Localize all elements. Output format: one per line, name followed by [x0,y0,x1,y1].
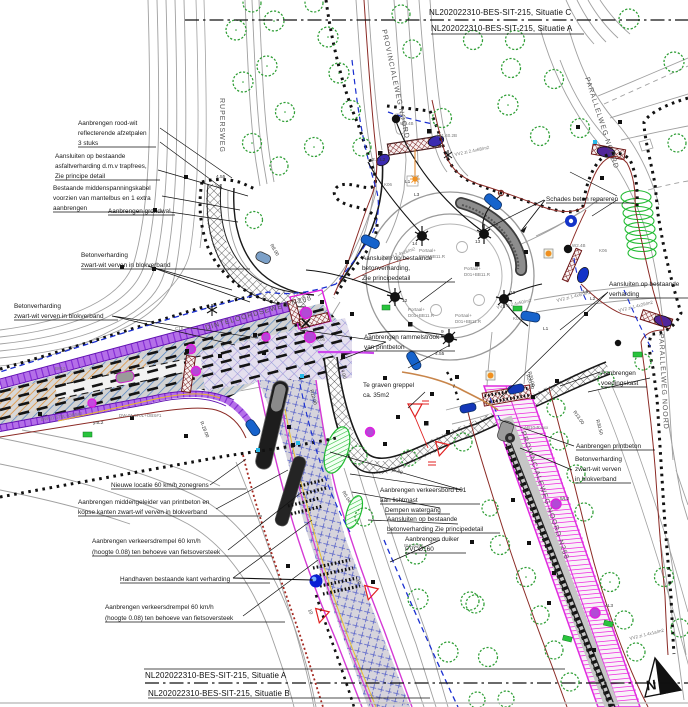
svg-text:in blokverband: in blokverband [575,476,617,483]
svg-text:L1: L1 [405,179,411,185]
svg-text:Dempen watergang: Dempen watergang [385,507,441,514]
svg-text:Betonverharding: Betonverharding [575,456,622,463]
svg-text:Aanbrengen verkeersbord L01: Aanbrengen verkeersbord L01 [380,487,467,494]
svg-text:voedingskast: voedingskast [601,380,639,387]
svg-text:Portaal+: Portaal+ [464,266,481,271]
svg-text:NL202022310-BES-SIT-215, Situa: NL202022310-BES-SIT-215, Situatie A [431,24,573,33]
svg-text:W2.4B: W2.4B [572,243,586,248]
svg-text:2.1 L2: 2.1 L2 [372,157,386,163]
svg-text:ca. 35m2: ca. 35m2 [363,392,390,399]
svg-text:Aanbrengen rammelstrook: Aanbrengen rammelstrook [364,334,440,341]
svg-text:kopse kanten zwart-wif verven: kopse kanten zwart-wif verven in blokver… [78,509,208,516]
svg-text:4.55: 4.55 [216,174,226,180]
svg-text:9: 9 [441,329,444,335]
svg-text:5/L2: 5/L2 [560,496,570,502]
svg-text:3 stuks: 3 stuks [78,140,98,147]
svg-text:voorzien van mantelbus en 1 ex: voorzien van mantelbus en 1 extra [53,195,151,202]
svg-text:Portaal+: Portaal+ [455,313,472,318]
svg-text:PVC#160: PVC#160 [404,543,424,548]
svg-text:(hoogte 0.08) ten behoeve van: (hoogte 0.08) ten behoeve van fietsovers… [92,549,221,556]
svg-text:(hoogte 0.08) ten behoeve van: (hoogte 0.08) ten behoeve van fietsovers… [105,615,234,622]
svg-text:RUPERSWEG: RUPERSWEG [218,98,225,153]
svg-text:B#12: B#12 [55,366,66,371]
svg-text:AB10-R-5xx: AB10-R-5xx [524,425,549,430]
svg-text:D01+BB11.R: D01+BB11.R [419,254,446,259]
svg-text:K06: K06 [384,182,393,187]
svg-text:betonverharding Zie principed: betonverharding Zie principedetail [387,526,483,533]
svg-text:L3: L3 [414,192,420,198]
svg-text:Aansluiten op bestaande: Aansluiten op bestaande [55,153,126,160]
svg-text:Betonverharding: Betonverharding [14,303,61,310]
svg-text:NL202022310-BES-SIT-215, Situa: NL202022310-BES-SIT-215, Situatie A [145,671,287,680]
svg-text:C16: C16 [175,326,184,331]
svg-text:Portaal+: Portaal+ [419,248,436,253]
svg-text:Aanbrengen verkeersdrempel 60: Aanbrengen verkeersdrempel 60 km/h [105,604,214,611]
svg-text:L1: L1 [543,326,549,332]
svg-text:A21.40.2B: A21.40.2B [436,133,457,138]
svg-text:4L3: 4L3 [605,603,613,609]
svg-text:van printbeton: van printbeton [364,344,405,351]
svg-text:Te graven greppel: Te graven greppel [363,382,414,389]
svg-text:Aanbrengen verkeersdrempel 60: Aanbrengen verkeersdrempel 60 km/h [92,538,201,545]
svg-text:aan lichtmast: aan lichtmast [380,497,418,504]
svg-text:betonverharding,: betonverharding, [362,265,410,272]
svg-text:Aanbrengen rood-wit: Aanbrengen rood-wit [78,120,138,127]
svg-text:D01+BB11.R: D01+BB11.R [408,313,435,318]
svg-text:Handhaven bestaande kant verha: Handhaven bestaande kant verharding [120,576,231,583]
svg-text:Aanbrengen duiker: Aanbrengen duiker [405,536,460,543]
svg-text:Portaal+: Portaal+ [408,307,425,312]
svg-text:L2: L2 [590,296,596,302]
svg-text:K06: K06 [513,316,522,321]
svg-text:K06: K06 [317,337,326,342]
svg-text:K06: K06 [599,248,608,253]
svg-text:Betonverharding: Betonverharding [81,252,128,259]
svg-text:12: 12 [402,298,408,304]
svg-text:Aansluiten op bestaande: Aansluiten op bestaande [387,516,458,523]
svg-text:reflecterende afzetpalen: reflecterende afzetpalen [78,130,147,137]
svg-text:zwart-wit verven in blokverban: zwart-wit verven in blokverband [81,262,171,269]
svg-text:Aanbrengen grondwal: Aanbrengen grondwal [108,208,171,215]
svg-text:Schades beton repareren: Schades beton repareren [546,196,619,203]
svg-text:D01+BB11.R: D01+BB11.R [455,319,482,324]
svg-text:Zie principe detail: Zie principe detail [55,173,105,180]
svg-text:asfaltverharding d.m.v trapfre: asfaltverharding d.m.v trapfrees, [55,163,147,170]
svg-text:verharding: verharding [609,291,640,298]
svg-text:zwart-wit verven in blokverban: zwart-wit verven in blokverband [14,313,104,320]
svg-text:10: 10 [510,290,516,296]
svg-text:NL202022310-BES-SIT-215, Situa: NL202022310-BES-SIT-215, Situatie C [429,8,571,17]
svg-text:Aanbrengen middengeleider van: Aanbrengen middengeleider van printbeton… [78,499,210,506]
svg-text:zwart-wit verven: zwart-wit verven [575,466,622,473]
svg-text:Zie principedetail: Zie principedetail [362,275,410,282]
svg-text:13: 13 [475,239,481,245]
svg-text:Aanbrengen: Aanbrengen [601,370,636,377]
svg-text:W2.4B: W2.4B [400,121,414,126]
svg-text:4.55: 4.55 [435,351,445,357]
svg-text:aanbrengen: aanbrengen [53,205,88,212]
svg-text:Nieuwe locatie 60 km/h zonegre: Nieuwe locatie 60 km/h zonegrens [111,482,209,489]
svg-text:DW-01.570L+OBS#1: DW-01.570L+OBS#1 [119,413,162,418]
svg-text:NL202022310-BES-SIT-215, Situa: NL202022310-BES-SIT-215, Situatie B [148,689,290,698]
svg-text:Aanbrengen printbeton: Aanbrengen printbeton [576,443,641,450]
svg-text:Aansluiten op bestaande: Aansluiten op bestaande [609,281,680,288]
svg-text:Bestaande middenspanningskabel: Bestaande middenspanningskabel [53,185,151,192]
svg-text:D01+BB11.R: D01+BB11.R [464,272,491,277]
svg-text:y4L2: y4L2 [93,420,104,426]
